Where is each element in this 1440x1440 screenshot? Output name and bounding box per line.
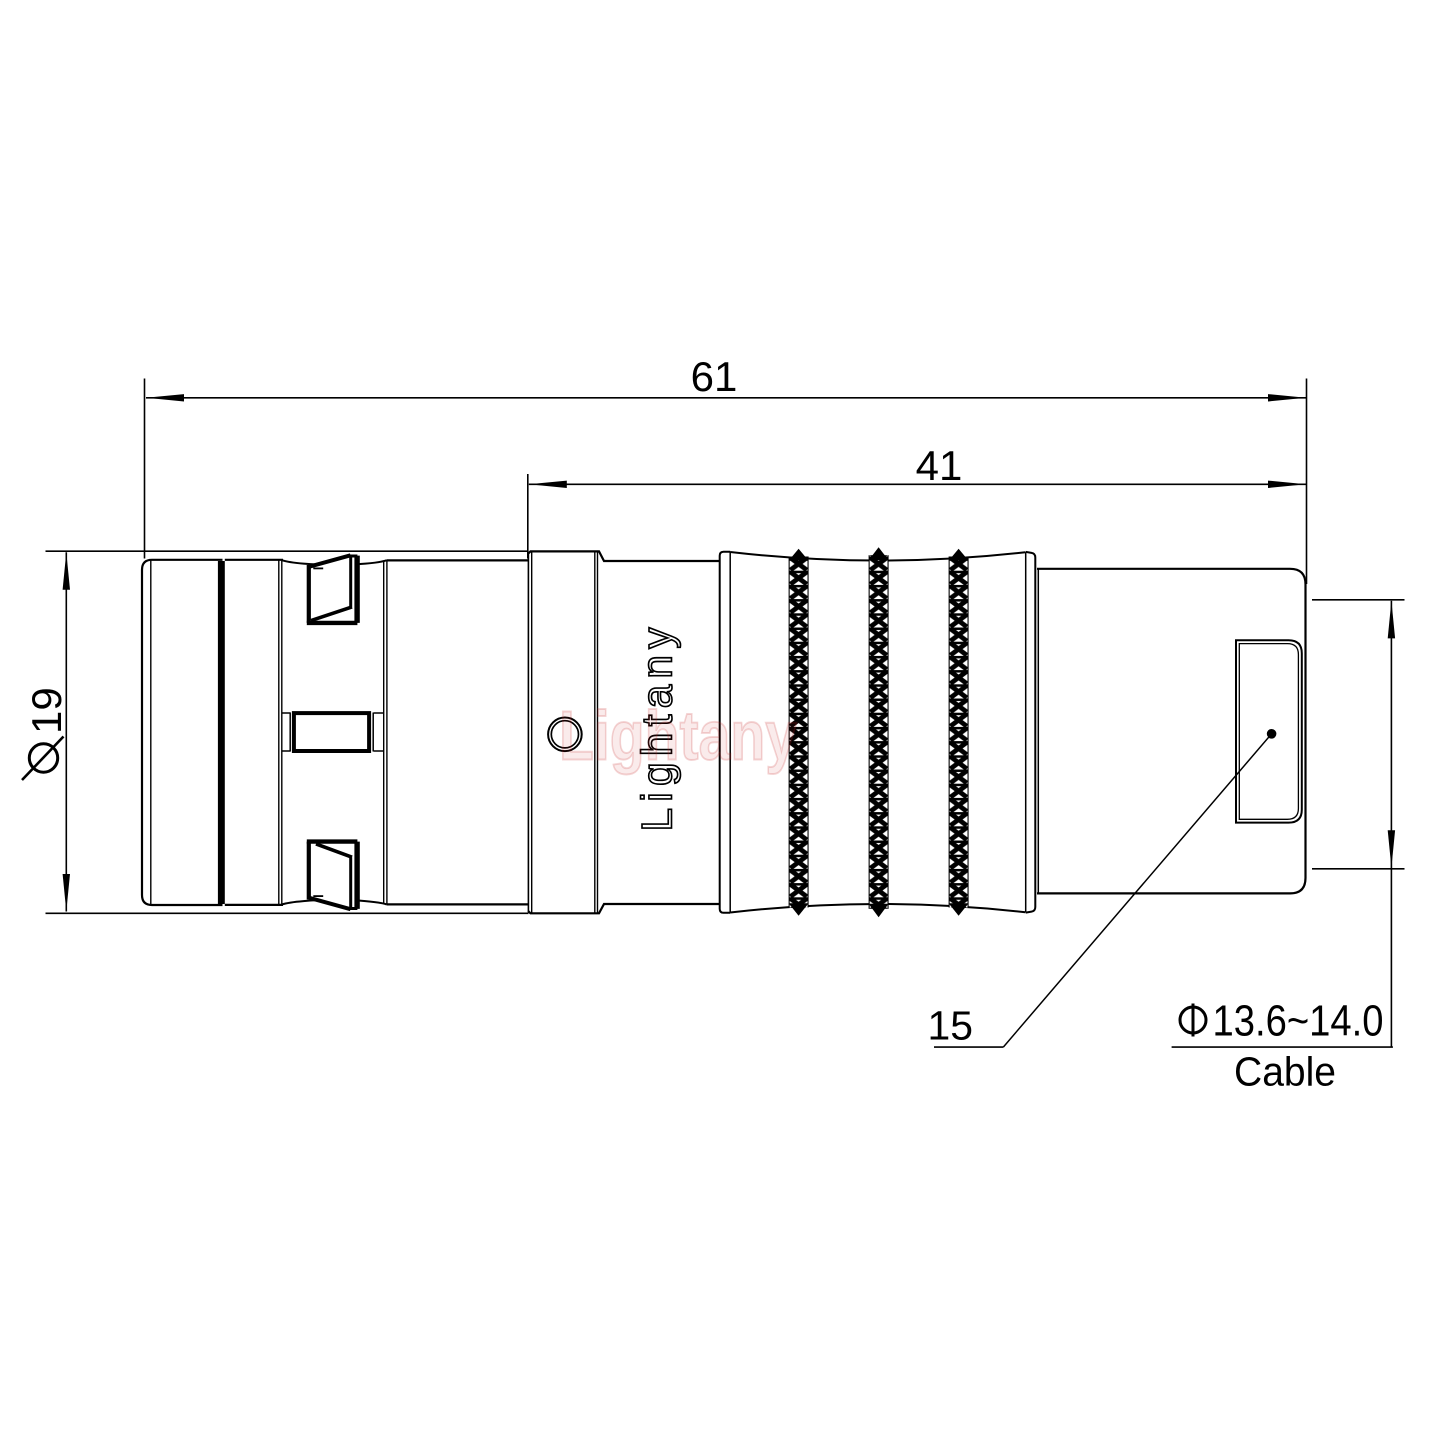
svg-text:Cable: Cable bbox=[1234, 1049, 1336, 1095]
svg-text:15: 15 bbox=[928, 1003, 974, 1049]
svg-text:13.6~14.0: 13.6~14.0 bbox=[1213, 996, 1384, 1045]
svg-text:19: 19 bbox=[23, 687, 70, 734]
svg-text:61: 61 bbox=[691, 353, 738, 400]
svg-text:Lightany: Lightany bbox=[559, 697, 797, 775]
svg-text:41: 41 bbox=[916, 442, 963, 489]
